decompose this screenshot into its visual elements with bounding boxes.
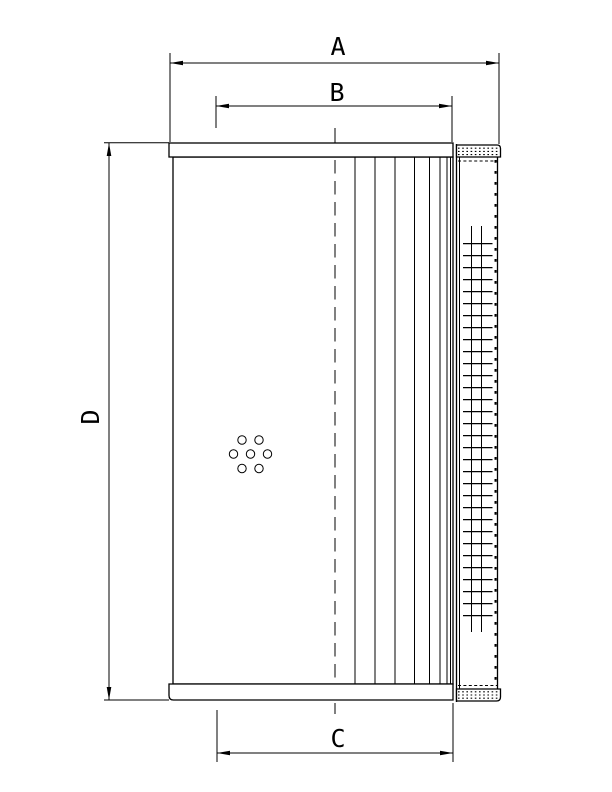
dim-c-label: C <box>330 724 345 753</box>
dim-d-arrow-bottom <box>107 687 112 700</box>
element-front-view <box>169 128 453 714</box>
drawing-page: A B C D <box>0 0 612 792</box>
dim-d-arrow-top <box>107 143 112 156</box>
element-shell <box>173 157 453 684</box>
dimension-b: B <box>216 78 452 142</box>
bottom-end-cap <box>169 684 453 700</box>
dim-a-arrow-left <box>170 61 183 66</box>
filter-element-drawing: A B C D <box>0 0 612 792</box>
dim-d-label: D <box>76 409 105 424</box>
dim-c-arrow-left <box>217 751 230 756</box>
dimension-d: D <box>76 143 169 700</box>
dim-b-arrow-left <box>216 104 229 109</box>
dim-b-label: B <box>329 78 344 107</box>
dim-a-arrow-right <box>486 61 499 66</box>
top-end-cap <box>169 143 453 157</box>
dim-b-arrow-right <box>439 104 452 109</box>
element-side-view <box>457 144 501 702</box>
dim-c-arrow-right <box>440 751 453 756</box>
dim-a-label: A <box>330 32 345 61</box>
thread-pattern <box>472 226 482 632</box>
